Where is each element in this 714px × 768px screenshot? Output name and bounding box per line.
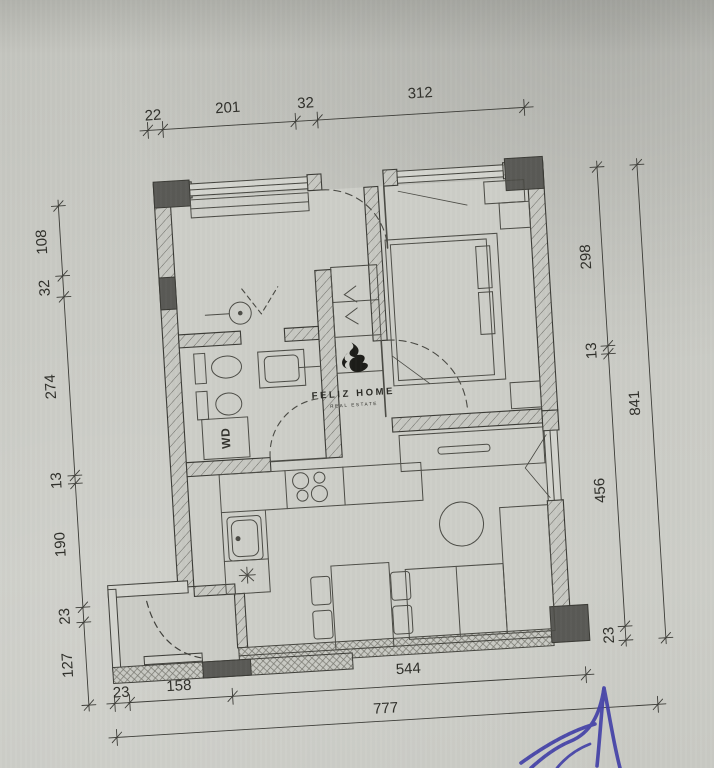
dim-right-inner-3: 23 (600, 626, 618, 644)
floor-plan-drawing: WD (0, 0, 714, 768)
dim-right-outer: 841 (626, 390, 644, 416)
washer-dryer-label: WD (218, 427, 233, 449)
pen-signature (521, 688, 620, 768)
dim-top-3: 312 (407, 84, 433, 102)
dim-right-inner-1: 13 (583, 342, 601, 360)
dim-left-4: 190 (51, 532, 69, 558)
dim-bottom-outer: 777 (373, 699, 399, 717)
dim-left-6: 127 (59, 652, 77, 678)
dim-right-inner-0: 298 (577, 244, 595, 270)
dim-right-inner-2: 456 (591, 477, 609, 503)
dim-bottom-2: 544 (395, 660, 421, 678)
dim-left-2: 274 (42, 374, 60, 400)
dim-bottom-1: 158 (166, 677, 192, 695)
dim-top-2: 32 (297, 94, 315, 112)
dim-top-1: 201 (215, 99, 241, 117)
dim-left-3: 13 (48, 472, 66, 490)
floor-plan-photo: WD (0, 0, 714, 768)
dim-left-5: 23 (56, 608, 74, 626)
dim-left-1: 32 (36, 279, 54, 297)
faucet-dot (236, 537, 240, 541)
dim-left-0: 108 (33, 229, 51, 255)
dim-top-0: 22 (144, 107, 162, 125)
dim-bottom-0: 23 (112, 684, 130, 702)
